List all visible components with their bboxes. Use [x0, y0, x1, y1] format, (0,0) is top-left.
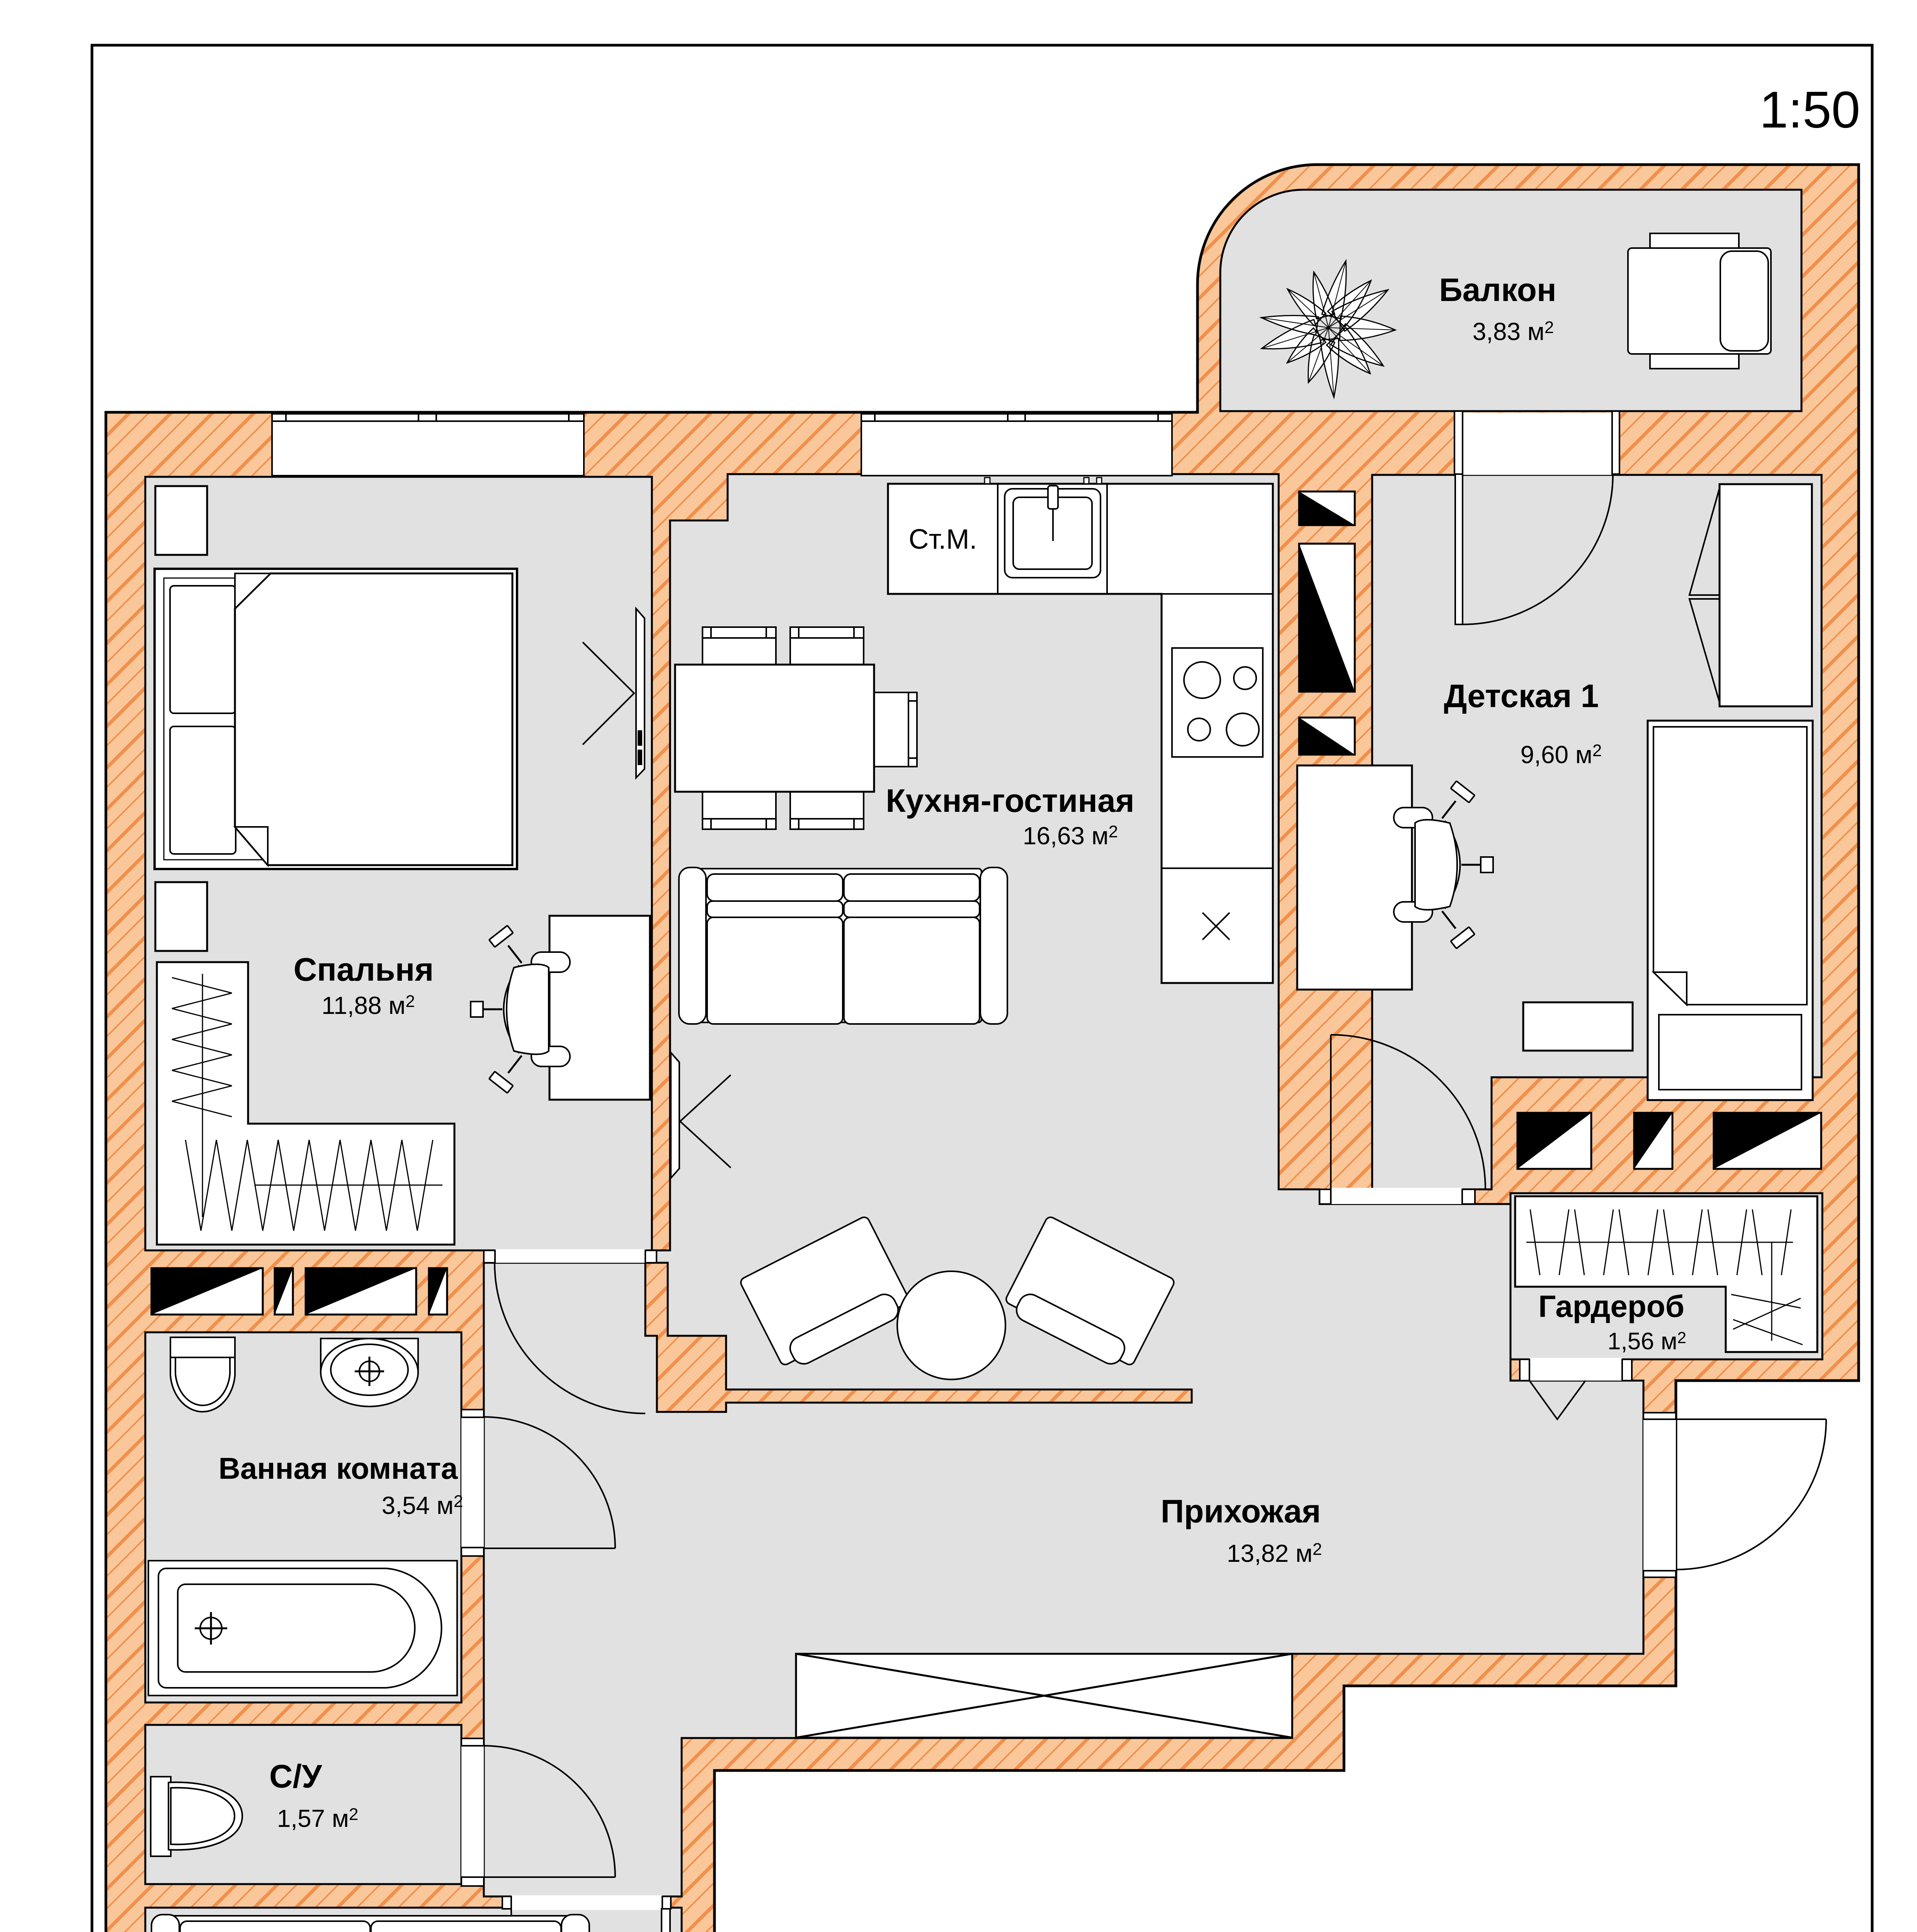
- svg-text:16,63 м2: 16,63 м2: [1023, 822, 1118, 850]
- svg-text:Прихожая: Прихожая: [1161, 1493, 1321, 1529]
- svg-text:11,88 м2: 11,88 м2: [321, 992, 415, 1019]
- svg-text:9,60 м2: 9,60 м2: [1521, 741, 1602, 769]
- svg-text:Ванная комната: Ванная комната: [219, 1451, 458, 1485]
- svg-text:Спальня: Спальня: [294, 951, 434, 988]
- svg-text:13,82 м2: 13,82 м2: [1227, 1539, 1322, 1567]
- svg-text:3,83 м2: 3,83 м2: [1473, 318, 1554, 345]
- svg-text:С/У: С/У: [269, 1758, 323, 1794]
- svg-text:1:50: 1:50: [1759, 81, 1860, 139]
- svg-text:1,56 м2: 1,56 м2: [1607, 1328, 1686, 1355]
- svg-text:Кухня-гостиная: Кухня-гостиная: [886, 782, 1135, 819]
- svg-text:Гардероб: Гардероб: [1538, 1289, 1684, 1323]
- svg-text:Ст.М.: Ст.М.: [909, 524, 977, 555]
- svg-text:Детская 1: Детская 1: [1444, 678, 1599, 714]
- svg-text:3,54 м2: 3,54 м2: [382, 1492, 463, 1519]
- svg-text:1,57 м2: 1,57 м2: [277, 1804, 359, 1832]
- svg-text:Балкон: Балкон: [1439, 272, 1556, 308]
